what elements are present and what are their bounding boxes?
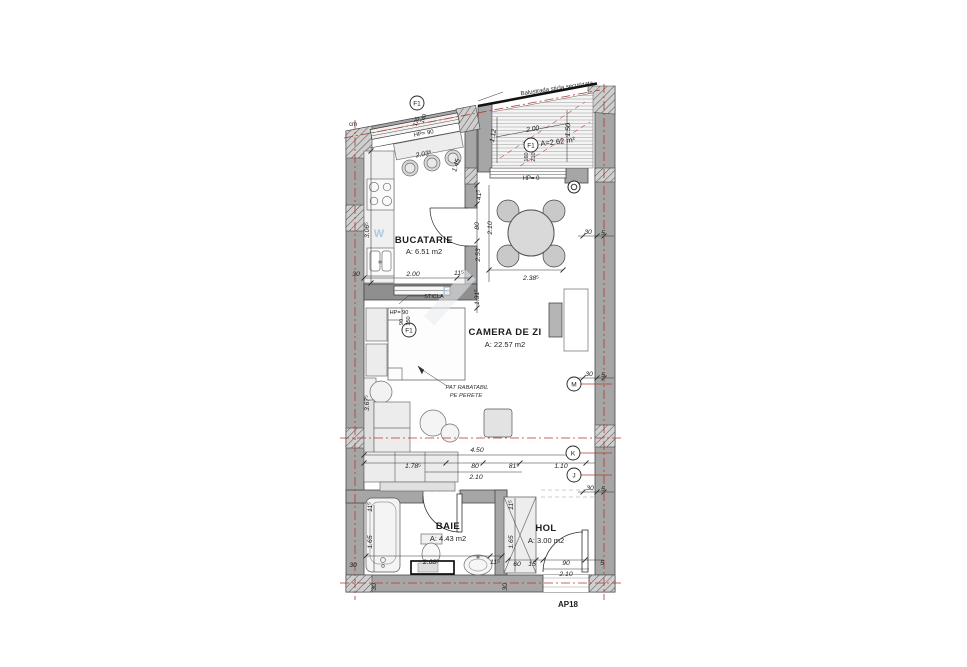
dim-wall-30a: 30: [584, 229, 592, 236]
dim-bath-left: 1.65: [367, 535, 374, 548]
dim-chain-80: 80: [474, 222, 481, 230]
dim-bottom-30a: 30: [371, 583, 378, 591]
foldbed-label-2: PE PERETE: [450, 393, 483, 399]
dim-hall-left: 1.65: [508, 535, 515, 548]
grid-letter-k: K: [571, 451, 576, 458]
window-tag-text: F1: [527, 143, 535, 150]
dim-pass-210: 2.10: [468, 474, 482, 481]
wardrobe-symbol: [366, 344, 387, 376]
room-area-hall: A: 3.00 m2: [528, 536, 564, 545]
grid-letter-j: J: [572, 473, 575, 480]
dim-wall-5a: 5: [601, 230, 605, 237]
parapet-label-balcony: HP= 0: [523, 176, 541, 182]
dim-chain-41: 41⁵: [476, 190, 483, 201]
dim-kitchen-jamb: 11⁵: [454, 270, 464, 277]
dim-bottom-30b: 30: [502, 583, 509, 591]
parapet-label-mid: HP= 90: [390, 310, 409, 316]
dim-living-depth: 3.67⁵: [364, 395, 371, 411]
wall-right: [595, 86, 615, 592]
room-label-hall: HOL: [535, 523, 556, 534]
dim-door-210: 2.10: [558, 571, 572, 578]
room-label-living: CAMERA DE ZI: [468, 327, 541, 338]
glass-label: STICLA: [424, 294, 444, 300]
apartment-code: AP18: [558, 600, 579, 609]
fold-bed-symbol: [388, 308, 465, 380]
room-label-bath: BAIE: [436, 521, 460, 532]
dim-kitchen-depth: 3.06⁵: [364, 222, 371, 238]
window-tag-text: F1: [413, 101, 421, 108]
dim-wall-30b: 30: [585, 371, 593, 378]
dim-chain-210: 2.10: [487, 221, 494, 235]
dim-sofa-len: 1.78⁵: [405, 463, 421, 470]
dim-chain-253: 2.53: [475, 248, 482, 262]
sofa-symbol: [364, 400, 458, 491]
dim-left-30-low: 30: [349, 562, 357, 569]
window-size: 210: [531, 152, 537, 161]
floor-plan-page: BUCATARIE A: 6.51 m2 CAMERA DE ZI A: 22.…: [0, 0, 967, 667]
room-area-kitchen: A: 6.51 m2: [406, 247, 442, 256]
foldbed-label-1: PAT RABATABIL: [445, 385, 488, 391]
dim-balcony-right: 1.50: [565, 123, 573, 137]
window-tag-text: F1: [405, 328, 413, 335]
watermark-letter-f: F: [443, 285, 450, 297]
dim-door-5: 5: [600, 560, 604, 567]
dim-wall-5c: 5: [601, 486, 605, 493]
dim-wall-30: 30: [352, 271, 360, 278]
dim-bath-jamb: 11⁵: [367, 502, 374, 512]
wall-balcony-bottom-block: [565, 168, 588, 183]
dim-hall-jamb: 11⁵: [508, 500, 515, 510]
dim-table-width: 2.38⁵: [522, 275, 539, 282]
room-label-kitchen: BUCATARIE: [395, 235, 453, 246]
dim-wall-30c: 30: [586, 485, 594, 492]
watermark-letter-w: W: [374, 228, 385, 240]
grid-letter-m: M: [571, 382, 576, 389]
dim-pass-80: 80: [471, 463, 479, 470]
pouf-symbol: [441, 424, 459, 442]
dim-wall-5b: 5: [601, 372, 605, 379]
dining-table-symbol: [497, 200, 565, 267]
window-size: 150: [406, 316, 412, 325]
floor-plan-canvas: BUCATARIE A: 6.51 m2 CAMERA DE ZI A: 22.…: [0, 0, 967, 667]
tv-symbol: [549, 303, 562, 337]
window-size: 160: [524, 152, 530, 161]
wardrobe-symbol: [366, 308, 387, 341]
room-area-bath: A: 4.43 m2: [430, 534, 466, 543]
dim-hall-15: 15: [528, 561, 536, 568]
dim-pass-110: 1.10: [554, 463, 567, 470]
dim-bath-right-jamb: 11⁵: [490, 559, 500, 566]
dim-pass-81: 81⁵: [509, 463, 520, 470]
tv-cabinet: [564, 289, 588, 351]
dim-kitchen-width: 2.00: [405, 271, 419, 278]
drain-icon: [568, 181, 580, 193]
armchair-symbol: [484, 409, 512, 437]
dim-door-90: 90: [562, 560, 570, 567]
dim-bath-width: 2.68⁵: [422, 559, 439, 566]
dim-chain-131: 1.31⁵: [474, 289, 481, 305]
dim-sofa-total: 4.50: [470, 447, 483, 454]
window-size: 90: [399, 319, 405, 325]
dim-hall-60: 60: [513, 561, 521, 568]
unit-note: cm: [349, 122, 357, 128]
room-area-living: A: 22.57 m2: [485, 340, 525, 349]
